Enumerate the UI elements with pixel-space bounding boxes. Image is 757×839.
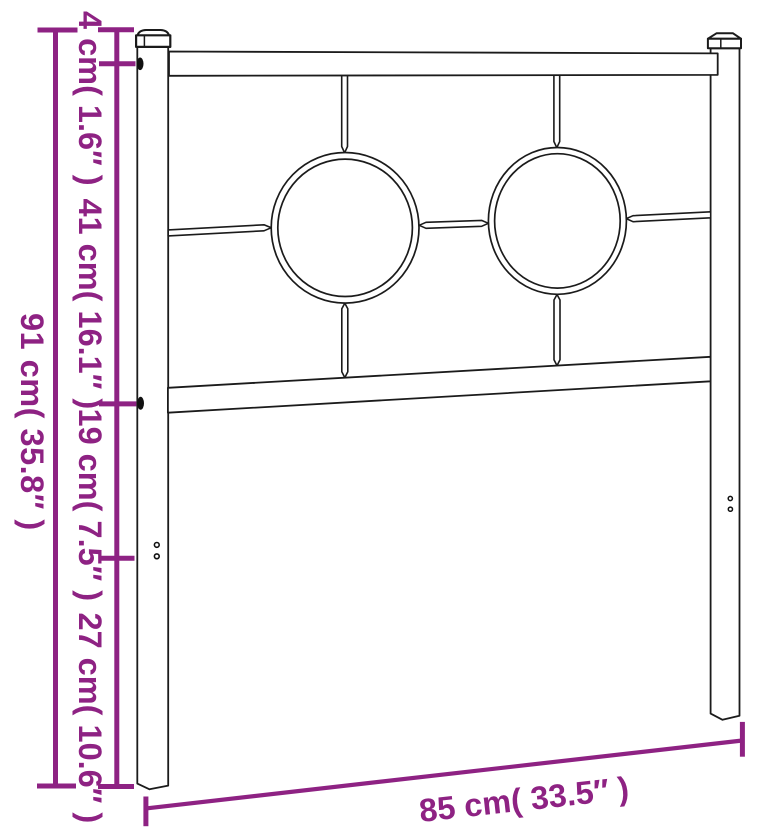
svg-text:27 cm( 10.6″ ): 27 cm( 10.6″ ) — [72, 613, 108, 824]
svg-text:41 cm( 16.1″ ): 41 cm( 16.1″ ) — [72, 199, 108, 410]
svg-text:91 cm( 35.8″ ): 91 cm( 35.8″ ) — [14, 313, 50, 531]
svg-text:19 cm( 7.5″ ): 19 cm( 7.5″ ) — [72, 409, 108, 602]
svg-text:4 cm( 1.6″ ): 4 cm( 1.6″ ) — [72, 11, 108, 186]
